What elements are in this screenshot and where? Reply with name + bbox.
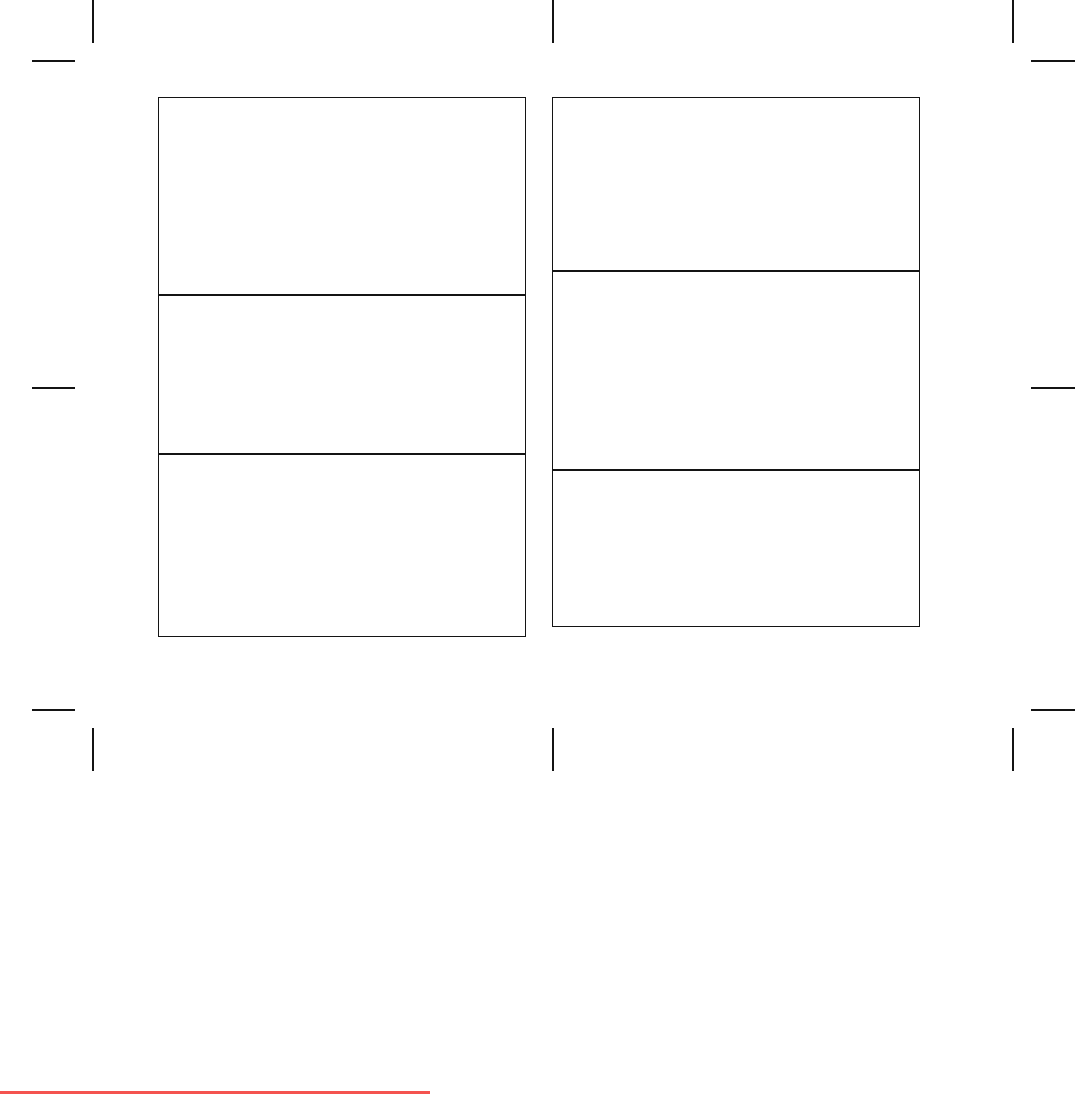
artifact-layer (0, 0, 1075, 1095)
print-proof-sheet (0, 0, 1075, 1095)
red-edge-line (0, 1091, 430, 1094)
